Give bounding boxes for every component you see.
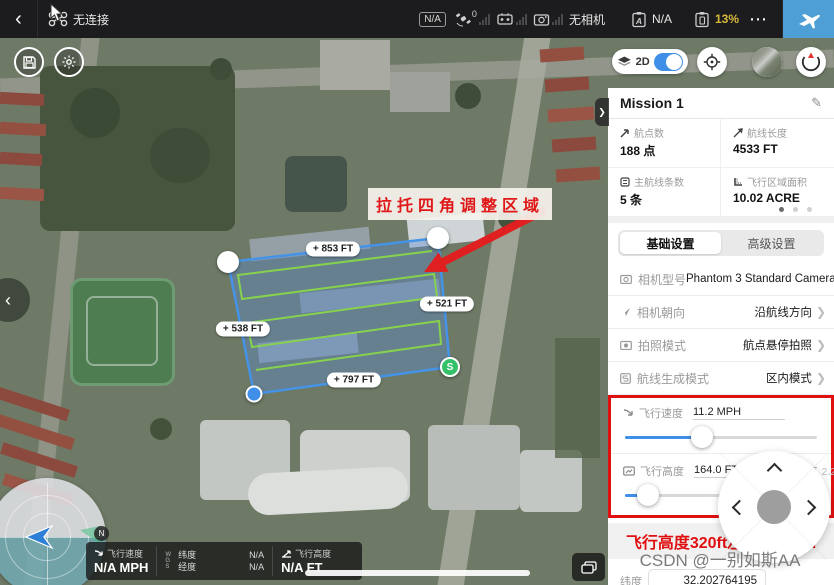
app-window: ‹ 无连接 N/A 0 [0, 0, 834, 585]
checklist-clipboard-icon: A [631, 11, 647, 28]
locate-me-button[interactable] [697, 47, 727, 77]
route-length-icon [733, 128, 743, 138]
remote-controller-icon [496, 12, 514, 26]
setting-camera-model[interactable]: 相机型号 Phantom 3 Standard Camera❯ [608, 263, 834, 296]
back-chevron-icon: ‹ [15, 8, 22, 31]
connection-status-text: 无连接 [73, 11, 109, 28]
compass-reset-button[interactable] [796, 47, 826, 77]
mission-polygon[interactable] [228, 238, 450, 394]
gear-icon [61, 54, 77, 70]
north-badge: N [94, 526, 109, 541]
save-icon [22, 55, 37, 70]
crosshair-icon [703, 53, 721, 71]
save-mission-button[interactable] [14, 47, 44, 77]
latitude-input[interactable]: 32.202764195 [648, 569, 766, 585]
minimap-button[interactable] [752, 47, 782, 77]
lat-label: 纬度 [178, 549, 196, 561]
topbar-right-cluster: N/A 0 无相机 [419, 0, 834, 38]
watermark: CSDN @一别如斯AA [606, 546, 834, 571]
chevron-right-icon: ❯ [816, 371, 826, 385]
nudge-up-button[interactable] [766, 463, 782, 479]
slider-thumb[interactable] [691, 426, 713, 448]
chevron-right-icon: ❯ [598, 107, 606, 118]
waypoint-icon [620, 128, 630, 138]
slider-thumb[interactable] [637, 484, 659, 506]
mission-stats: 航点数 188 点 航线长度 4533 FT 主航线条数 5 条 [608, 119, 834, 223]
speed-value: N/A MPH [94, 560, 148, 575]
resolution-value: 2.2 CM/PX [822, 466, 834, 478]
mission-header: Mission 1 ✎ [608, 88, 834, 119]
stats-page-dots[interactable] [779, 207, 812, 212]
edit-mission-button[interactable]: ✎ [811, 95, 822, 111]
speed-arrow-icon [94, 549, 104, 559]
tab-basic-settings[interactable]: 基础设置 [620, 232, 721, 254]
altitude-icon [623, 466, 635, 476]
map-2d-toggle[interactable]: 2D [612, 49, 688, 74]
home-indicator[interactable] [305, 570, 530, 576]
ruler-icon [733, 177, 743, 187]
battery-status[interactable]: 13% [694, 11, 739, 28]
settings-tabs: 基础设置 高级设置 [618, 230, 824, 256]
speed-arrow-icon [623, 408, 634, 418]
more-menu-button[interactable]: ⋯ [749, 9, 768, 30]
camera-signal-icon [533, 13, 550, 26]
flight-speed-value[interactable]: 11.2 MPH [693, 406, 785, 420]
stat-area: 飞行区域面积 10.02 ACRE [721, 168, 834, 217]
serpentine-icon [620, 177, 630, 187]
lng-label: 经度 [178, 561, 196, 573]
battery-clipboard-icon [694, 11, 710, 28]
nudge-center-button[interactable] [757, 490, 791, 524]
mouse-cursor [50, 3, 66, 23]
camera-status-text: 无相机 [569, 11, 605, 28]
edge-distance-label-bottom: + 797 FT [327, 373, 381, 388]
checklist-value: N/A [652, 12, 672, 26]
edge-distance-label-top: + 853 FT [306, 242, 360, 257]
camera-icon [620, 274, 632, 284]
checklist-status[interactable]: A N/A [631, 11, 672, 28]
gps-signal-bars-icon [479, 14, 490, 25]
setting-photo-mode[interactable]: 拍照模式 航点悬停拍照❯ [608, 329, 834, 362]
edge-distance-label-right: + 521 FT [420, 297, 474, 312]
stat-waypoints: 航点数 188 点 [608, 119, 721, 168]
lng-value: N/A [249, 561, 264, 573]
edge-distance-label-left: + 538 FT [216, 322, 270, 337]
heading-icon [620, 307, 631, 317]
flight-speed-row: 飞行速度 11.2 MPH [611, 400, 831, 421]
top-status-bar: ‹ 无连接 N/A 0 [0, 0, 834, 38]
stat-main-lines: 主航线条数 5 条 [608, 168, 721, 217]
svg-text:A: A [635, 16, 642, 26]
map-mode-label: 2D [636, 56, 650, 68]
chevron-right-icon: ❯ [816, 338, 826, 352]
photo-mode-icon [620, 340, 632, 350]
satellite-icon [454, 12, 472, 27]
takeoff-button[interactable] [782, 0, 834, 38]
telemetry-coords: WGS 纬度N/A 经度N/A [157, 542, 272, 580]
setting-route-mode[interactable]: 航线生成模式 区内模式❯ [608, 362, 834, 395]
back-button[interactable]: ‹ [0, 0, 38, 38]
nudge-left-button[interactable] [732, 499, 748, 515]
altitude-icon [281, 549, 292, 559]
telemetry-speed: 飞行速度 N/A MPH [86, 542, 156, 580]
mission-panel: ❯ Mission 1 ✎ 航点数 188 点 航线长度 4533 FT [608, 88, 834, 585]
layers-icon [617, 55, 632, 69]
tab-advanced-settings[interactable]: 高级设置 [721, 232, 822, 254]
battery-percent: 13% [715, 12, 739, 26]
route-mode-icon [620, 373, 631, 384]
map-layers-button[interactable] [572, 553, 605, 581]
gps-count: 0 [472, 9, 477, 19]
toggle-switch[interactable] [654, 53, 683, 71]
flight-speed-slider[interactable] [625, 425, 817, 449]
chevron-right-icon: ❯ [816, 305, 826, 319]
flight-mode-badge: N/A [419, 12, 446, 27]
polygon-corner-handle-bottomleft[interactable] [246, 386, 263, 403]
latitude-label: 纬度 [620, 573, 648, 585]
chevron-left-icon: ‹ [5, 290, 11, 311]
setting-camera-heading[interactable]: 相机朝向 沿航线方向❯ [608, 296, 834, 329]
stat-route-length: 航线长度 4533 FT [721, 119, 834, 168]
route-start-marker[interactable]: S [440, 357, 460, 377]
polygon-corner-handle-topright[interactable] [427, 227, 449, 249]
polygon-corner-handle-topleft[interactable] [217, 251, 239, 273]
airplane-icon [797, 8, 821, 30]
minimap-thumbnail [752, 47, 782, 77]
lat-value: N/A [249, 549, 264, 561]
map-settings-button[interactable] [54, 47, 84, 77]
camera-signal-bars-icon [552, 14, 563, 25]
rc-signal-bars-icon [516, 14, 527, 25]
nudge-right-button[interactable] [801, 499, 817, 515]
stacked-windows-icon [581, 561, 597, 574]
collapse-panel-tab[interactable]: ❯ [595, 98, 609, 126]
mission-title: Mission 1 [620, 95, 684, 111]
tutorial-annotation: 拉托四角调整区域 [368, 188, 552, 220]
compass-icon [800, 51, 822, 73]
